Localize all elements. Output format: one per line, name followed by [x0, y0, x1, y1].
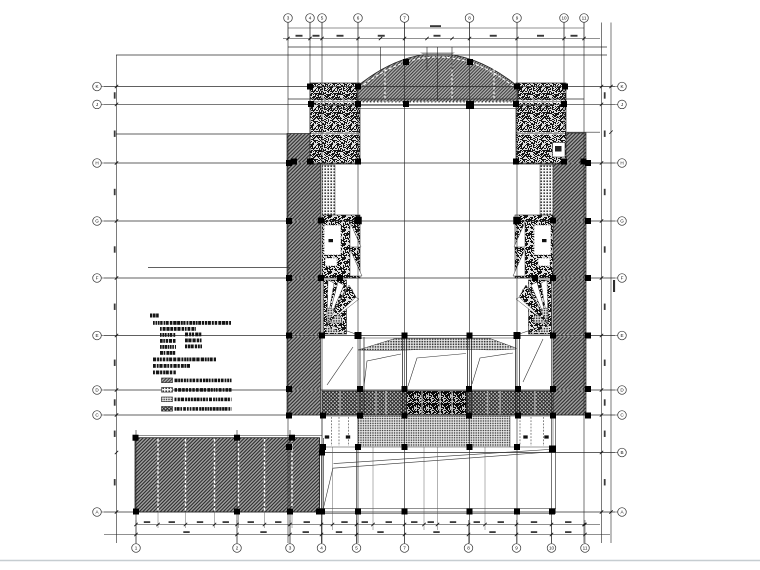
svg-text:8: 8 [468, 16, 471, 21]
svg-text:E: E [95, 333, 98, 338]
svg-text:4: 4 [320, 546, 323, 551]
svg-text:3: 3 [289, 546, 292, 551]
svg-text:10: 10 [561, 16, 567, 21]
svg-text:B: B [620, 450, 623, 455]
svg-text:9: 9 [516, 16, 519, 21]
svg-text:J: J [96, 102, 98, 107]
svg-text:9: 9 [515, 546, 518, 551]
svg-text:7: 7 [403, 16, 406, 21]
svg-text:F: F [621, 276, 624, 281]
svg-text:11: 11 [583, 546, 588, 551]
svg-text:1: 1 [135, 546, 138, 551]
svg-text:G: G [95, 219, 99, 224]
svg-text:10: 10 [549, 546, 555, 551]
svg-text:11: 11 [582, 16, 587, 21]
svg-text:H: H [620, 161, 623, 166]
svg-text:4: 4 [309, 16, 312, 21]
svg-text:2: 2 [236, 546, 239, 551]
svg-text:F: F [96, 276, 99, 281]
svg-text:G: G [620, 219, 624, 224]
svg-text:3: 3 [287, 16, 290, 21]
svg-text:7: 7 [403, 546, 406, 551]
svg-text:H: H [95, 161, 98, 166]
svg-text:6: 6 [357, 16, 360, 21]
svg-text:J: J [621, 102, 623, 107]
svg-text:5: 5 [321, 16, 324, 21]
svg-text:5: 5 [355, 546, 358, 551]
svg-text:E: E [620, 333, 623, 338]
svg-text:8: 8 [467, 546, 470, 551]
